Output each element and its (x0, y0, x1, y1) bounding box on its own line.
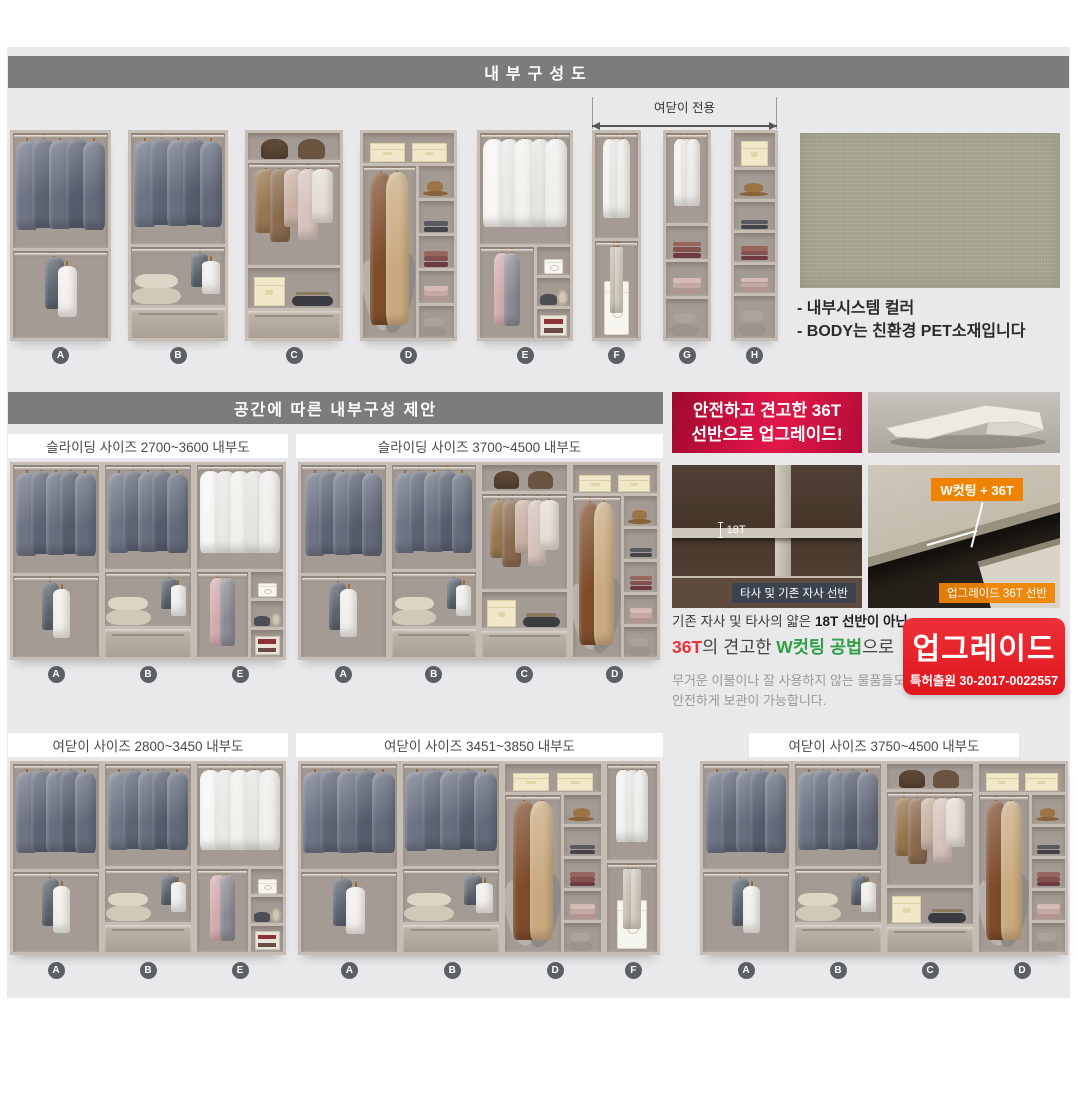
column (505, 795, 561, 952)
wardrobe-unit-E (477, 130, 573, 341)
hanger-rod (393, 467, 476, 470)
shelf-items-boxbelt (482, 592, 567, 629)
unit-label-H: H (746, 347, 763, 364)
hanger-rod (796, 871, 880, 874)
hanging-section (197, 572, 248, 657)
hanging-section (13, 576, 99, 657)
label-cell: F (607, 962, 660, 980)
suits-garment (75, 473, 96, 556)
hanger-rod (704, 874, 788, 877)
hanging-section (392, 572, 477, 626)
column (537, 247, 570, 338)
unit-label-F: F (625, 962, 642, 979)
shelf-whitebox (537, 247, 570, 275)
wardrobe-unit-B (792, 761, 884, 955)
shelf-items-darkpile (537, 278, 570, 306)
shelf-items-sign (251, 926, 283, 952)
description-line1: 기존 자사 및 타사의 얇은 18T 선반이 아닌 (672, 612, 907, 632)
column (419, 166, 454, 338)
suits-garment (83, 141, 106, 230)
suggestion-box-labels: ABDF (298, 962, 660, 980)
hanger-hook (867, 877, 869, 882)
column (197, 869, 248, 952)
shelf-items-darkpile (251, 601, 283, 627)
shelf-items-stackdark (564, 827, 601, 856)
split-section (197, 869, 283, 952)
hinged-only-dimension: 여닫이 전용 (592, 97, 777, 131)
hanger-rod (302, 874, 396, 877)
unit-label-D: D (400, 347, 417, 364)
shelf-items-darkpile (251, 897, 283, 923)
suits-garment (167, 772, 188, 851)
hanger-rod (14, 467, 98, 470)
wardrobe-unit-G (663, 130, 711, 341)
hanging-section (301, 465, 386, 573)
hanging-section (505, 795, 561, 952)
split-section (363, 166, 454, 338)
shelf-items-roundboxes (734, 296, 775, 338)
hanger-rod (106, 467, 190, 470)
shelf-items-stackmaroon (666, 226, 708, 259)
drawer (131, 308, 225, 338)
unit-label-F: F (608, 347, 625, 364)
wardrobe-unit-B (102, 462, 194, 660)
hanger-rod (14, 253, 107, 256)
few-garment (58, 266, 77, 318)
shelf-roundboxes (1032, 923, 1065, 952)
shelf-items-bags2 (248, 133, 340, 160)
suits-garment (362, 473, 382, 556)
suggestion-box-labels: ABE (10, 666, 286, 684)
unit-label-C: C (516, 666, 533, 683)
hinged-only-label: 여닫이 전용 (654, 97, 715, 116)
coats-garment (386, 172, 408, 324)
shelf-items-boxbelt (248, 268, 340, 307)
section-header-title: 내부구성도 (484, 60, 593, 84)
shelf-items-boxes2 (979, 764, 1065, 792)
shelf-items-boxbelt (887, 888, 973, 924)
shelf-hat (564, 795, 601, 824)
shelf-hat (624, 496, 657, 526)
unit-label-A: A (48, 666, 65, 683)
upgrade-badge: 안전하고 견고한 36T 선반으로 업그레이드! (672, 392, 862, 453)
suggestion-box-photo (10, 462, 286, 660)
shelf-darkpile (537, 278, 570, 306)
wardrobe-unit-B (102, 761, 194, 955)
shelf-items-roundboxes (564, 923, 601, 952)
shelf-stackpink (734, 265, 775, 294)
column (363, 166, 416, 338)
shelf-boxes2 (363, 133, 454, 163)
drawer (482, 631, 567, 657)
wardrobe-unit-B (128, 130, 228, 341)
split-section (505, 795, 601, 952)
hanging-section (703, 872, 789, 952)
swatch-note-1: - 내부시스템 컬러 (797, 294, 914, 318)
shelf-items-hat (419, 166, 454, 198)
shelf-items-stackpink (1032, 891, 1065, 920)
drawer (105, 925, 191, 952)
wardrobe-unit-E (194, 761, 286, 955)
label-cell: B (401, 962, 504, 980)
suits-garment (200, 141, 223, 227)
hanging-section (666, 133, 708, 223)
shelf-stackpink (419, 271, 454, 303)
hanging-section (105, 465, 191, 569)
shelf-boxes2 (505, 764, 601, 792)
column (1032, 795, 1065, 952)
shelf-items-bags2 (887, 764, 973, 789)
suggestion-box-labels: ABCD (298, 666, 660, 684)
split-section (480, 247, 570, 338)
suits-garment (372, 772, 395, 854)
label-cell: D (504, 962, 607, 980)
hanger-rod (483, 496, 566, 499)
compare-right-caption: 업그레이드 36T 선반 (939, 583, 1055, 603)
hanger-rod (198, 871, 247, 874)
suggestion-box-title: 슬라이딩 사이즈 2700~3600 내부도 (8, 434, 288, 458)
shelf-stackdark (734, 202, 775, 231)
hanging-section (197, 764, 283, 866)
suits-garment (75, 772, 96, 854)
shelf-boxbelt (887, 888, 973, 924)
w-cut-badge: W컷팅 + 36T (931, 478, 1022, 501)
pants-garment (615, 247, 624, 312)
hanging-section (979, 795, 1029, 952)
unit-label-D: D (606, 666, 623, 683)
shelf-items-stackmaroon (419, 236, 454, 268)
wardrobe-unit-D (570, 462, 661, 660)
suggestions-header-title: 공간에 따른 내부구성 제안 (234, 396, 437, 420)
label-cell: C (884, 962, 976, 980)
shelf-roundboxes (734, 296, 775, 338)
few-garment (53, 589, 70, 637)
unit-label-B: B (140, 666, 157, 683)
unit-label-B: B (444, 962, 461, 979)
hanging-section (607, 863, 657, 952)
shirts-garment (259, 770, 280, 850)
label-cell: B (102, 962, 194, 980)
hanger-rod (506, 797, 560, 800)
hanging-section (607, 764, 657, 860)
shelf-items-roundboxes (624, 627, 657, 657)
shelf-wedge-illustration (868, 392, 1060, 453)
hanger-rod (608, 766, 656, 769)
hanger-rod (106, 766, 190, 769)
shelf-items-boxes2 (505, 764, 601, 792)
drawer (887, 927, 973, 952)
hanger-rod (198, 467, 282, 470)
shelf-items-whitebox (251, 572, 283, 598)
shelf-items-sign (251, 630, 283, 657)
shelf-box1 (734, 133, 775, 167)
measure-text: 18T (727, 524, 746, 536)
shelf-sign (537, 309, 570, 338)
column (573, 496, 622, 657)
shelf-items-hat (624, 496, 657, 526)
compare-18t-photo: 18T 타사 및 기존 자사 선반 (672, 465, 862, 608)
shelf-items-hat (1032, 795, 1065, 824)
hanging-section (392, 465, 477, 569)
hanging-section (13, 251, 108, 338)
hanging-section (595, 133, 638, 238)
hanger-rod (888, 794, 972, 797)
hanger-rod (302, 766, 396, 769)
shelf-items-sign (537, 309, 570, 338)
unit-label-C: C (286, 347, 303, 364)
shelf-stackpink (624, 595, 657, 625)
hanging-section (13, 764, 99, 869)
hanging-section (887, 792, 973, 885)
shelf-stackpink (1032, 891, 1065, 920)
hanging-section (197, 465, 283, 569)
mixed-garment (540, 500, 559, 550)
label-cell: D (570, 666, 661, 684)
upgrade-badge-line1: 안전하고 견고한 36T (693, 399, 841, 423)
hanger-hook (484, 878, 486, 883)
coats-garment (530, 801, 553, 940)
coats-garment (1001, 801, 1022, 940)
shelf-hat (734, 170, 775, 199)
shelf-profile-photo (868, 392, 1060, 453)
hanging-section (480, 247, 534, 338)
hanging-section (248, 163, 340, 265)
wardrobe-unit-D (360, 130, 457, 341)
hanger-hook (348, 584, 350, 589)
hanger-rod (132, 135, 224, 138)
hanging-section (795, 869, 881, 922)
shelf-items-hat (564, 795, 601, 824)
drawer (795, 925, 881, 952)
wardrobe-unit-A (10, 130, 111, 341)
shelf-stackdark (564, 827, 601, 856)
hanging-section (13, 133, 108, 248)
shelf-items-roundboxes (1032, 923, 1065, 952)
label-cell: B (389, 666, 480, 684)
hanger-rod (404, 766, 498, 769)
shelf-stackmaroon (624, 562, 657, 592)
shelf-sign (251, 926, 283, 952)
unit-label-E: E (517, 347, 534, 364)
unit-label-A: A (52, 347, 69, 364)
shelf-items-stackdark (624, 529, 657, 559)
column (480, 247, 534, 338)
shelf-stackmaroon (564, 859, 601, 888)
hanger-rod (608, 865, 656, 868)
column (624, 496, 657, 657)
shelf-hat (1032, 795, 1065, 824)
shirts3-garment (617, 139, 630, 218)
shelf-items-stackpink (564, 891, 601, 920)
few-garment (340, 589, 357, 637)
label-cell: B (102, 666, 194, 684)
dimension-arrow (592, 125, 777, 127)
shelf-items-hat (734, 170, 775, 199)
unit-label-B: B (170, 347, 187, 364)
shelf-stackdark (624, 529, 657, 559)
label-cell: A (298, 962, 401, 980)
shelf-bags2 (248, 133, 340, 160)
hanging-section (403, 764, 499, 866)
hanging-section (13, 465, 99, 573)
suggestion-box-title: 슬라이딩 사이즈 3700~4500 내부도 (296, 434, 663, 458)
hanging-section (197, 869, 248, 952)
mixed-garment (946, 798, 965, 847)
wardrobe-unit-F (592, 130, 641, 341)
hanging-section (403, 869, 499, 922)
drawer (105, 629, 191, 657)
unit-label-A: A (738, 962, 755, 979)
hanging-section (301, 872, 397, 952)
hanging-section (301, 764, 397, 869)
wardrobe-unit-H (731, 130, 778, 341)
hanger-rod (249, 165, 339, 168)
suggestion-box-labels: ABE (10, 962, 286, 980)
label-cell: D (976, 962, 1068, 980)
shirts-garment (545, 139, 567, 227)
drawer (248, 311, 340, 338)
measure-mark (718, 522, 723, 538)
column (197, 572, 248, 657)
shelf-items-stackdark (734, 202, 775, 231)
few-garment (171, 585, 187, 616)
hanger-rod (302, 578, 385, 581)
hanging-section (795, 764, 881, 866)
hanger-rod (796, 766, 880, 769)
hanger-rod (106, 871, 190, 874)
hanging-section (482, 494, 567, 589)
label-cell: A (700, 962, 792, 980)
few-garment (171, 882, 187, 912)
shelf-items-stackdark (419, 201, 454, 233)
shelf-items-bags2 (482, 465, 567, 491)
few-garment (202, 261, 219, 294)
shelf-hat (419, 166, 454, 198)
shelf-items-roundboxes (419, 306, 454, 338)
suggestion-box-photo (298, 462, 660, 660)
suggestion-box-title: 여닫이 사이즈 3451~3850 내부도 (296, 733, 663, 757)
label-cell: B (792, 962, 884, 980)
hanger-hook (61, 881, 63, 886)
hanger-rod (302, 467, 385, 470)
hanger-rod (704, 766, 788, 769)
column (251, 572, 283, 657)
shelf-items-stackmaroon (564, 859, 601, 888)
shelf-stackmaroon (734, 233, 775, 262)
few-garment (861, 882, 877, 912)
hanger-rod (14, 766, 98, 769)
hanging-section (480, 133, 570, 244)
shirts3-garment (687, 139, 700, 206)
shelf-boxes2 (979, 764, 1065, 792)
suits-garment (452, 473, 472, 553)
shelf-stackmaroon (419, 236, 454, 268)
shelf-items-stackdark (1032, 827, 1065, 856)
unit-label-D: D (547, 962, 564, 979)
shelf-items-stackpink (666, 262, 708, 295)
wardrobe-unit-C (479, 462, 570, 660)
shelf-roundboxes (666, 299, 708, 338)
shirts-garment (259, 471, 280, 553)
shelf-boxbelt (482, 592, 567, 629)
hanger-rod (574, 498, 621, 501)
hanger-rod (198, 574, 247, 577)
pinkmix-garment (504, 253, 520, 326)
shelf-items-stackpink (624, 595, 657, 625)
shirts3-garment (634, 770, 649, 842)
unit-label-E: E (232, 962, 249, 979)
shelf-stackmaroon (666, 226, 708, 259)
unit-label-B: B (830, 962, 847, 979)
column (979, 795, 1029, 952)
compare-left-caption: 타사 및 기존 자사 선반 (732, 583, 856, 603)
section-header-internal-config: 내부구성도 (8, 56, 1069, 88)
hanger-hook (177, 580, 179, 585)
upgrade-description: 기존 자사 및 타사의 얇은 18T 선반이 아닌 36T의 견고한 W컷팅 공… (672, 612, 907, 711)
hanger-hook (751, 881, 753, 886)
description-line2: 36T의 견고한 W컷팅 공법으로 (672, 635, 907, 660)
shelf-items-stackmaroon (1032, 859, 1065, 888)
hanger-hook (355, 882, 357, 887)
hanging-section (105, 869, 191, 922)
hanging-section (573, 496, 622, 657)
wardrobe-unit-A (298, 761, 400, 955)
mixed-garment (312, 169, 332, 223)
shelf-darkpile (251, 601, 283, 627)
wardrobe-unit-A (10, 761, 102, 955)
stamp-title: 업그레이드 (913, 624, 1056, 668)
hanger-rod (980, 797, 1028, 800)
few-garment (476, 883, 493, 913)
coats-garment (594, 502, 615, 644)
shelf-items-boxes2 (363, 133, 454, 163)
split-section (197, 572, 283, 657)
wardrobe-unit-A (700, 761, 792, 955)
label-cell: A (10, 962, 102, 980)
hanger-rod (393, 574, 476, 577)
shelf-items-stackpink (419, 271, 454, 303)
unit-label-A: A (341, 962, 358, 979)
hanger-rod (404, 871, 498, 874)
label-cell: A (10, 666, 102, 684)
shelf-thickness-measure: 18T (718, 522, 746, 538)
shelf-stackdark (1032, 827, 1065, 856)
unit-label-A: A (48, 962, 65, 979)
unit-label-G: G (679, 347, 696, 364)
label-cell: E (194, 962, 286, 980)
suits-garment (474, 772, 497, 851)
hanger-hook (66, 261, 68, 266)
wardrobe-unit-C (245, 130, 343, 341)
label-cell: A (298, 666, 389, 684)
hanger-hook (210, 256, 212, 261)
hanger-rod (481, 249, 533, 252)
upgrade-badge-line2: 선반으로 업그레이드! (691, 423, 842, 447)
hanging-section (105, 764, 191, 866)
hanger-rod (106, 574, 190, 577)
suits-garment (857, 772, 878, 851)
shelf-darkpile (251, 897, 283, 923)
shelf-bags2 (482, 465, 567, 491)
suits-garment (765, 772, 786, 854)
shelf-stackmaroon (1032, 859, 1065, 888)
section-header-suggestions: 공간에 따른 내부구성 제안 (8, 392, 663, 424)
hanger-hook (463, 580, 465, 585)
unit-label-E: E (232, 666, 249, 683)
suggestion-box-labels: ABCD (700, 962, 1068, 980)
shelf-sign (251, 630, 283, 657)
suggestion-box-photo (700, 761, 1068, 955)
